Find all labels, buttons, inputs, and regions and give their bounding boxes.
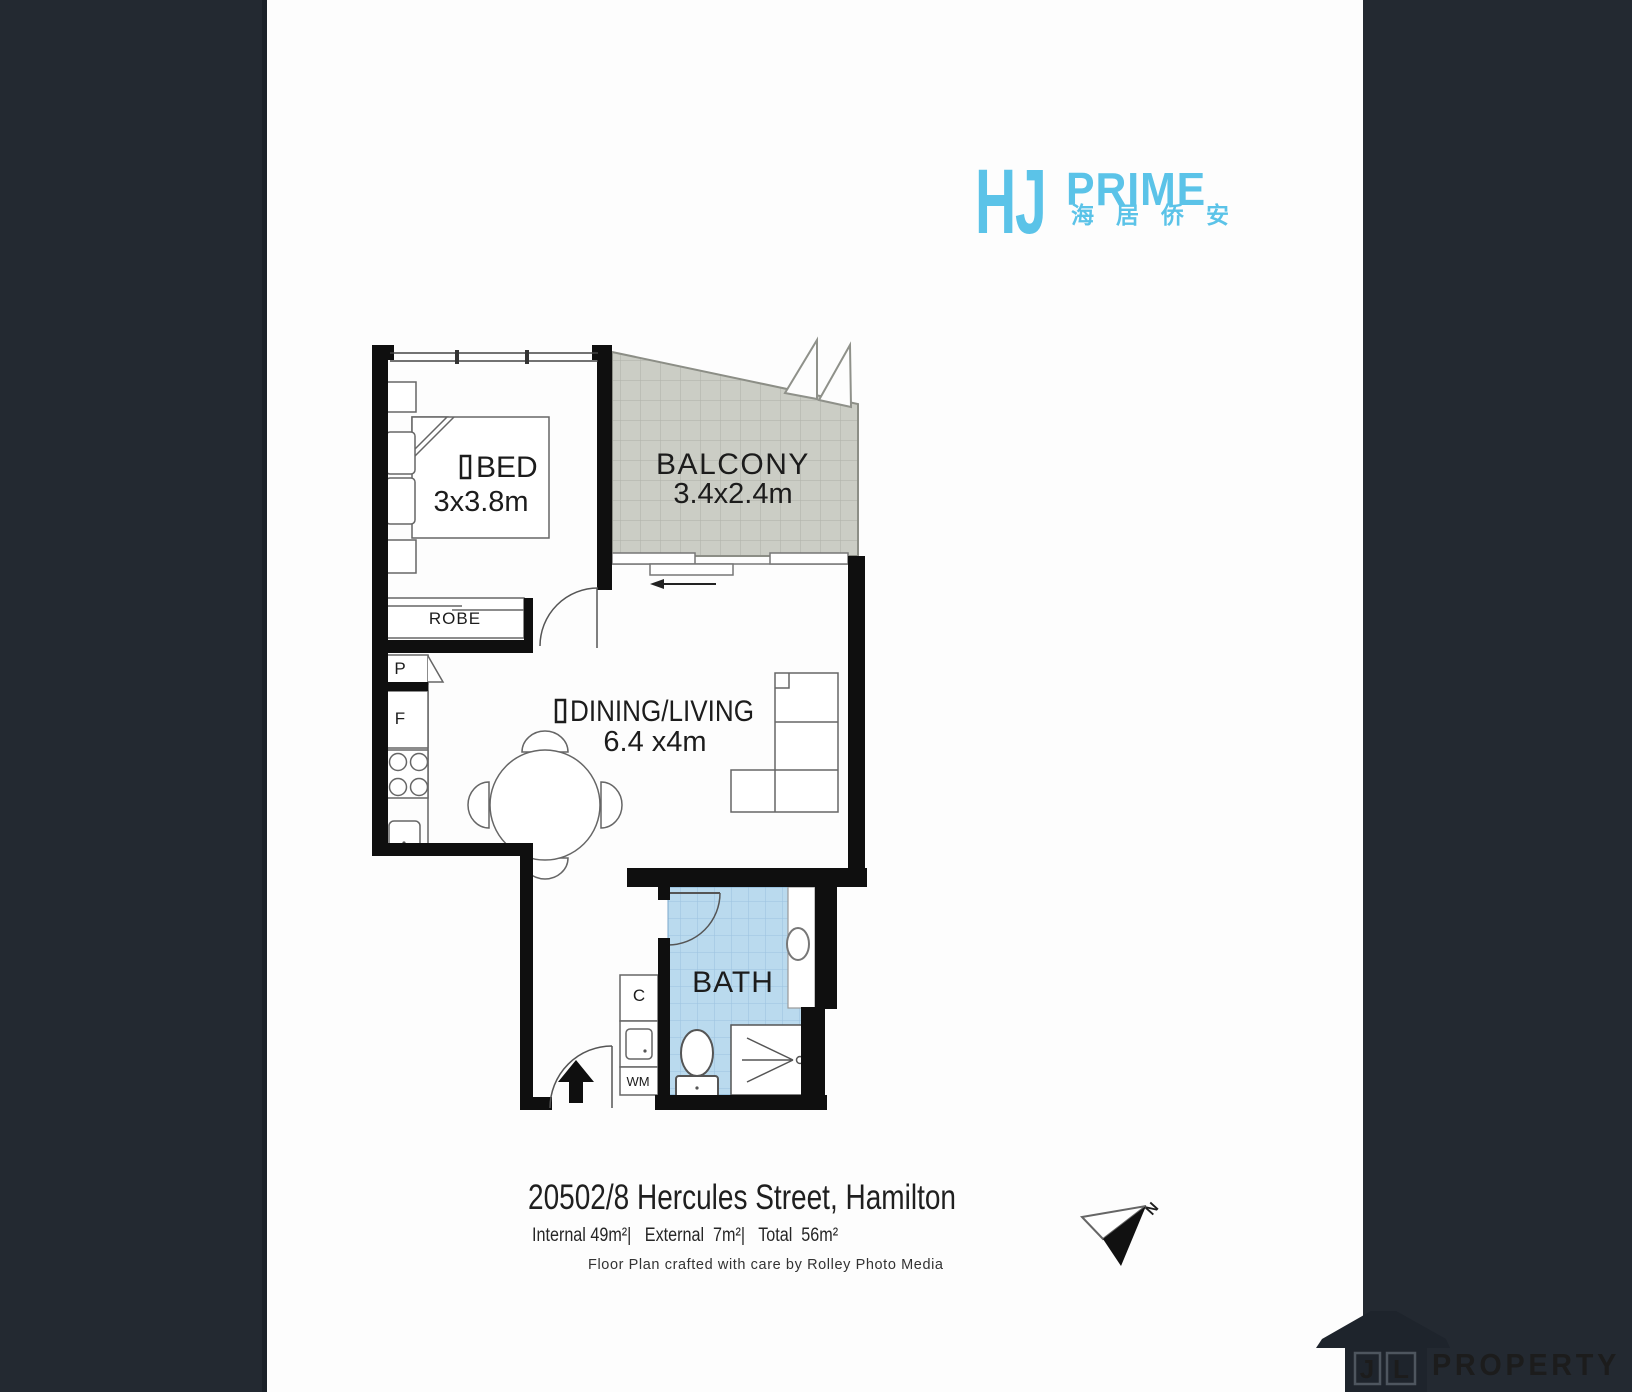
pillow-icon — [386, 432, 415, 474]
house-roof-icon — [1316, 1311, 1450, 1348]
toilet-icon — [681, 1030, 713, 1076]
dining-living-dims: 6.4 x4m — [603, 726, 706, 758]
bed-label: BED — [476, 451, 538, 484]
missing-glyph-artifact — [556, 700, 565, 722]
balcony-label: BALCONY — [656, 448, 810, 481]
watermark-letter-l: L — [1393, 1354, 1409, 1384]
bed-dims: 3x3.8m — [433, 486, 528, 518]
entry-arrow-icon — [558, 1060, 594, 1103]
washer-label: WM — [626, 1074, 649, 1089]
fridge-space — [387, 691, 428, 748]
property-address: 20502/8 Hercules Street, Hamilton — [528, 1180, 956, 1215]
north-label: N — [1142, 1199, 1162, 1218]
fridge-label: F — [395, 709, 405, 728]
bath-label: BATH — [692, 966, 774, 999]
dining-living-label: DINING/LIVING — [570, 695, 754, 728]
sofa-icon — [731, 673, 838, 812]
robe-label: ROBE — [429, 609, 481, 628]
watermark-property-text: PROPERTY — [1432, 1347, 1620, 1382]
floorplan-page: HJ PRIME 海居侨安 — [0, 0, 1632, 1392]
chair-icon — [468, 782, 489, 828]
balcony-break-line-icon — [819, 345, 851, 407]
sliding-door-panel — [650, 564, 733, 575]
pantry-door-mark — [428, 656, 443, 682]
pantry-label: P — [394, 659, 405, 678]
sliding-door-panel — [770, 553, 848, 564]
floorplan-credit: Floor Plan crafted with care by Rolley P… — [588, 1258, 944, 1273]
balcony-break-line-icon — [785, 340, 817, 399]
basin-icon — [787, 928, 809, 960]
chair-icon — [522, 731, 568, 752]
jl-property-watermark: J L PROPERTY — [1316, 1311, 1620, 1392]
area-summary: Internal 49m²| External 7m²| Total 56m² — [532, 1226, 838, 1245]
chair-icon — [601, 782, 622, 828]
cupboard-label: C — [633, 986, 645, 1005]
bedroom-door-swing — [540, 588, 598, 646]
watermark-letter-j: J — [1360, 1354, 1374, 1384]
sliding-door-panel — [612, 553, 695, 564]
pillow-icon — [386, 478, 415, 524]
balcony-dims: 3.4x2.4m — [673, 478, 792, 510]
bedside-table — [386, 382, 416, 412]
bedside-table — [386, 540, 416, 573]
window — [390, 350, 598, 364]
north-compass-icon: N — [1082, 1199, 1162, 1266]
pantry — [387, 655, 428, 684]
